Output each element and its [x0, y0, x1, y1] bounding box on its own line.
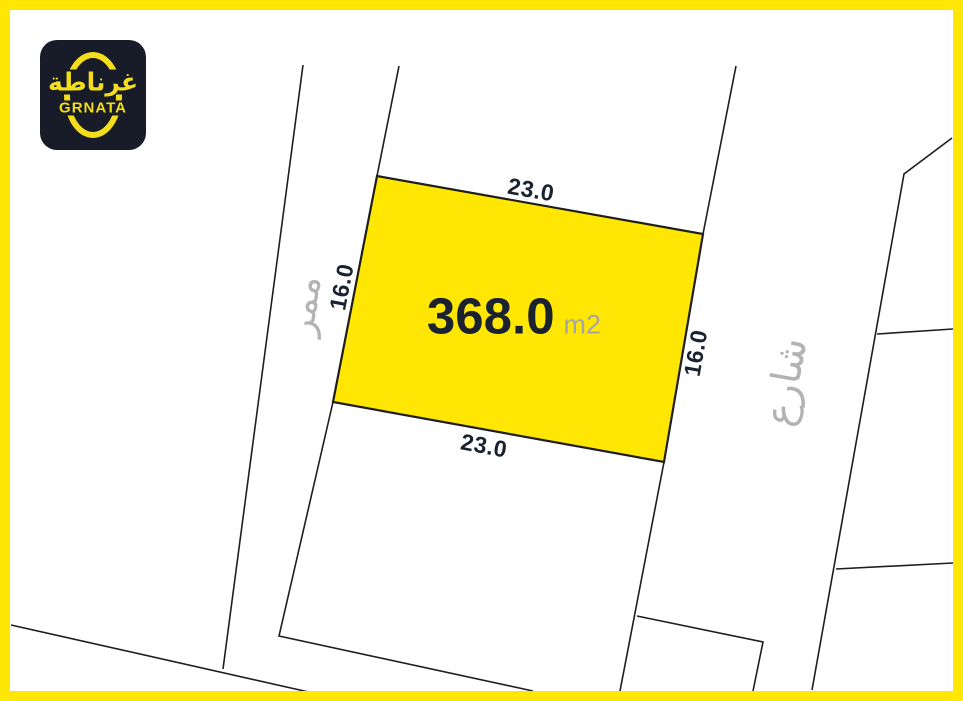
boundary-line-divider-lower: [836, 563, 953, 569]
plot-map-canvas: 23.0 23.0 16.0 16.0 368.0 m2 ممر شارع غر…: [0, 0, 963, 701]
boundary-line-branch-bottom: [637, 616, 763, 691]
plot-area-label: 368.0 m2: [427, 287, 601, 346]
boundary-line-passage-left: [223, 65, 303, 669]
logo-latin-wordmark: GRNATA: [58, 101, 128, 116]
plot-area-unit: m2: [564, 310, 602, 341]
logo-arabic-wordmark: غرناطة: [46, 70, 140, 95]
plot-area-value: 368.0: [427, 287, 555, 346]
grnata-logo: غرناطة GRNATA: [40, 40, 146, 150]
passage-name-label: ممر: [281, 273, 330, 338]
boundary-line-bottom-left: [11, 625, 322, 695]
boundary-line-divider-upper: [877, 329, 953, 334]
boundary-line-street-east: [812, 138, 952, 690]
